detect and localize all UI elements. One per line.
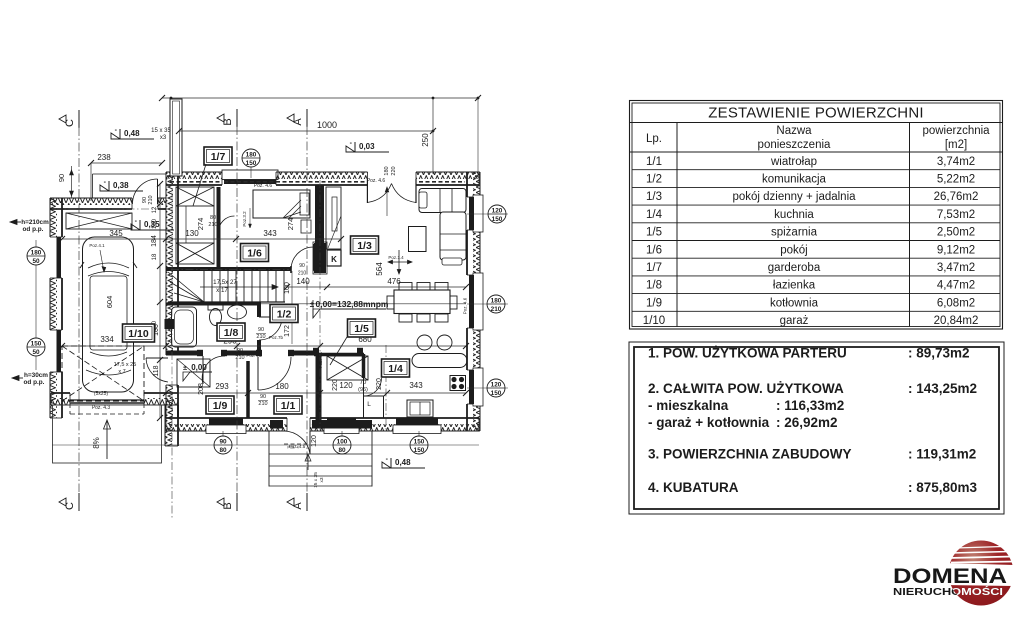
- svg-text:220: 220: [376, 378, 383, 390]
- svg-text:20,84m2: 20,84m2: [934, 315, 979, 327]
- svg-text:476: 476: [387, 277, 401, 286]
- svg-text:150: 150: [31, 341, 42, 348]
- svg-text:220: 220: [332, 379, 339, 391]
- svg-text:garderoba: garderoba: [768, 262, 821, 274]
- svg-text:17,5 x 25: 17,5 x 25: [114, 362, 137, 368]
- svg-text:Nazwa: Nazwa: [776, 125, 812, 137]
- svg-text:220: 220: [391, 166, 397, 175]
- svg-text:100: 100: [284, 282, 291, 294]
- svg-text:(5x25): (5x25): [94, 391, 109, 397]
- svg-text:Poz. 4.3: Poz. 4.3: [92, 405, 111, 411]
- svg-text:: 875,80m3: : 875,80m3: [908, 480, 978, 495]
- svg-text:90: 90: [219, 439, 227, 446]
- svg-text:150: 150: [414, 439, 425, 446]
- svg-text:od p.p.: od p.p.: [24, 379, 45, 386]
- svg-text:6,08m2: 6,08m2: [937, 297, 975, 309]
- svg-text:- garaż + kotłownia: - garaż + kotłownia: [648, 415, 770, 430]
- svg-text:0,00=132,88mnpm: 0,00=132,88mnpm: [315, 299, 388, 309]
- svg-text:26,76m2: 26,76m2: [934, 191, 979, 203]
- svg-text:1/7: 1/7: [646, 262, 662, 274]
- svg-text:90: 90: [260, 394, 266, 400]
- svg-text:210: 210: [258, 401, 267, 407]
- svg-text:9,12m2: 9,12m2: [937, 244, 975, 256]
- svg-text:±: ±: [310, 300, 315, 309]
- svg-text:120: 120: [339, 381, 353, 390]
- svg-text:140: 140: [296, 277, 310, 286]
- svg-text:(96): (96): [358, 387, 368, 393]
- svg-text:L: L: [367, 401, 371, 408]
- svg-text:150: 150: [246, 160, 257, 167]
- svg-text:1/3: 1/3: [646, 191, 662, 203]
- svg-text:wiatrołap: wiatrołap: [770, 156, 817, 168]
- svg-text:100: 100: [152, 218, 158, 229]
- svg-text:343: 343: [263, 229, 277, 238]
- svg-text:274: 274: [286, 218, 295, 231]
- svg-text:90: 90: [237, 348, 243, 354]
- svg-text:15 x 35: 15 x 35: [151, 128, 171, 134]
- svg-text:17,5x 27: 17,5x 27: [213, 279, 237, 286]
- svg-text:C: C: [64, 119, 76, 127]
- svg-text:1/8: 1/8: [646, 280, 662, 292]
- svg-text:2,50m2: 2,50m2: [937, 227, 975, 239]
- svg-text:4. KUBATURA: 4. KUBATURA: [648, 480, 739, 495]
- svg-text:B: B: [222, 118, 234, 125]
- svg-text:7,53m2: 7,53m2: [937, 209, 975, 221]
- svg-text:x 17: x 17: [216, 287, 228, 294]
- svg-text:15 x 35: 15 x 35: [313, 472, 319, 488]
- svg-text:238: 238: [97, 153, 111, 162]
- svg-text:180: 180: [491, 298, 502, 305]
- svg-text:80: 80: [338, 447, 346, 454]
- svg-text:h=210cm: h=210cm: [21, 219, 49, 226]
- svg-text:210: 210: [256, 334, 265, 340]
- svg-text:180: 180: [384, 166, 390, 175]
- svg-text:±: ±: [183, 363, 187, 372]
- svg-text:180: 180: [31, 250, 42, 257]
- svg-text:Poz.7b: Poz.7b: [269, 335, 284, 340]
- svg-text:: 116,33m2: : 116,33m2: [776, 398, 844, 413]
- svg-text:x3: x3: [319, 477, 325, 482]
- svg-text:ponieszczenia: ponieszczenia: [758, 139, 831, 151]
- svg-text:Poz.3.2: Poz.3.2: [242, 211, 247, 227]
- svg-text:0,00: 0,00: [191, 363, 207, 372]
- svg-text:150: 150: [491, 390, 502, 397]
- svg-text:1/2: 1/2: [646, 174, 662, 186]
- svg-text:pokój dzienny + jadalnia: pokój dzienny + jadalnia: [732, 191, 856, 203]
- svg-text:1/10: 1/10: [128, 328, 149, 340]
- svg-text:od p.p.: od p.p.: [23, 226, 44, 233]
- svg-text:150: 150: [492, 216, 503, 223]
- svg-text:Poz.1.4: Poz.1.4: [388, 255, 404, 260]
- svg-text:5,22m2: 5,22m2: [937, 174, 975, 186]
- svg-text:210: 210: [491, 306, 502, 313]
- svg-text:1/8: 1/8: [224, 327, 239, 339]
- svg-text:Poz.4.1: Poz.4.1: [89, 243, 105, 248]
- svg-text:210: 210: [148, 195, 154, 204]
- svg-text:kotłownia: kotłownia: [770, 297, 819, 309]
- svg-text:1/5: 1/5: [646, 227, 662, 239]
- svg-text:x3: x3: [160, 135, 167, 141]
- svg-text:100: 100: [337, 439, 348, 446]
- svg-text:1/10: 1/10: [643, 315, 665, 327]
- svg-text:komunikacja: komunikacja: [762, 174, 827, 186]
- svg-text:8%: 8%: [92, 437, 101, 449]
- svg-text:: 89,73m2: : 89,73m2: [908, 346, 970, 361]
- svg-text:118: 118: [153, 365, 160, 376]
- svg-text:x 7: x 7: [118, 369, 125, 375]
- svg-text:210: 210: [235, 355, 244, 361]
- svg-text:1/2: 1/2: [277, 309, 292, 321]
- svg-text:345: 345: [109, 229, 123, 238]
- svg-text:210: 210: [298, 271, 307, 277]
- svg-text:120: 120: [492, 208, 503, 215]
- svg-text:80: 80: [219, 447, 227, 454]
- svg-text:80: 80: [210, 215, 216, 221]
- svg-text:274: 274: [196, 218, 205, 231]
- svg-text:1/7: 1/7: [211, 151, 226, 163]
- svg-text:250: 250: [421, 133, 430, 147]
- svg-text:334: 334: [100, 335, 114, 344]
- svg-text:DOMENA: DOMENA: [893, 565, 1007, 588]
- svg-text:150: 150: [414, 447, 425, 454]
- svg-text:1/3: 1/3: [357, 240, 372, 252]
- svg-text:210: 210: [208, 222, 217, 228]
- svg-text:Lp.: Lp.: [646, 133, 662, 145]
- svg-text:: 26,92m2: : 26,92m2: [776, 415, 838, 430]
- svg-text:0,48: 0,48: [124, 129, 140, 138]
- svg-text:180: 180: [275, 382, 289, 391]
- svg-text:120: 120: [491, 382, 502, 389]
- svg-text:K: K: [331, 255, 337, 264]
- svg-text:h=30cm: h=30cm: [24, 372, 48, 379]
- svg-text:90: 90: [299, 263, 305, 269]
- svg-text:Poz. 70: Poz. 70: [246, 353, 262, 358]
- svg-text:[m2]: [m2]: [945, 139, 967, 151]
- svg-text:: 143,25m2: : 143,25m2: [908, 381, 977, 396]
- svg-text:1/9: 1/9: [646, 297, 662, 309]
- svg-text:293: 293: [215, 382, 229, 391]
- svg-text:Poz. 4.6: Poz. 4.6: [463, 297, 468, 314]
- svg-text:4,47m2: 4,47m2: [937, 280, 975, 292]
- svg-text:Poz. 4.1: Poz. 4.1: [318, 351, 323, 368]
- svg-text:604: 604: [105, 296, 114, 309]
- svg-text:0,38: 0,38: [113, 181, 129, 190]
- svg-text:90: 90: [258, 327, 264, 333]
- svg-text:B: B: [222, 502, 234, 509]
- svg-text:Poz. 4.6: Poz. 4.6: [367, 178, 386, 184]
- svg-text:172: 172: [284, 325, 291, 337]
- svg-text:70: 70: [360, 380, 367, 386]
- svg-text:343: 343: [409, 381, 423, 390]
- svg-text:2. CAŁWITA POW. UŻYTKOWA: 2. CAŁWITA POW. UŻYTKOWA: [648, 381, 844, 396]
- svg-text:208: 208: [198, 383, 205, 395]
- svg-text:A: A: [292, 502, 304, 510]
- svg-text:1000: 1000: [317, 120, 337, 130]
- svg-text:0,48: 0,48: [395, 458, 411, 467]
- svg-text:1/4: 1/4: [646, 209, 663, 221]
- svg-text:garaż: garaż: [780, 315, 809, 327]
- svg-text:Poz. 4.6: Poz. 4.6: [254, 183, 273, 189]
- svg-text:1/4: 1/4: [388, 363, 403, 375]
- svg-text:A: A: [292, 118, 304, 126]
- svg-text:90: 90: [57, 174, 66, 182]
- svg-text:3. POWIERZCHNIA ZABUDOWY: 3. POWIERZCHNIA ZABUDOWY: [648, 447, 852, 462]
- svg-text:0,03: 0,03: [359, 142, 375, 151]
- svg-text:1/6: 1/6: [247, 248, 262, 260]
- svg-text:564: 564: [375, 262, 384, 276]
- svg-text:1/5: 1/5: [354, 323, 369, 335]
- svg-text:1/1: 1/1: [646, 156, 662, 168]
- svg-text:- mieszkalna: - mieszkalna: [648, 398, 729, 413]
- svg-text:50: 50: [32, 349, 40, 356]
- svg-text:spiżarnia: spiżarnia: [771, 227, 818, 239]
- svg-text:ZESTAWIENIE POWIERZCHNI: ZESTAWIENIE POWIERZCHNI: [708, 105, 923, 122]
- svg-text:1/9: 1/9: [213, 400, 228, 412]
- svg-text:C: C: [64, 502, 76, 510]
- svg-text:1/6: 1/6: [646, 244, 662, 256]
- svg-text:3,47m2: 3,47m2: [937, 262, 975, 274]
- svg-text:kuchnia: kuchnia: [774, 209, 814, 221]
- svg-text:1. POW. UŻYTKOWA PARTERU: 1. POW. UŻYTKOWA PARTERU: [648, 346, 847, 361]
- svg-text:180: 180: [246, 152, 257, 159]
- svg-text:3,74m2: 3,74m2: [937, 156, 975, 168]
- svg-text:powierzchnia: powierzchnia: [922, 125, 990, 137]
- svg-text:184: 184: [151, 235, 158, 247]
- svg-text:50: 50: [32, 258, 40, 265]
- svg-text:12: 12: [152, 206, 158, 213]
- svg-text:pokój: pokój: [780, 244, 808, 256]
- svg-text:18: 18: [152, 253, 158, 260]
- svg-text:: 119,31m2: : 119,31m2: [908, 447, 976, 462]
- svg-text:1/1: 1/1: [281, 400, 296, 412]
- svg-text:łazienka: łazienka: [773, 280, 816, 292]
